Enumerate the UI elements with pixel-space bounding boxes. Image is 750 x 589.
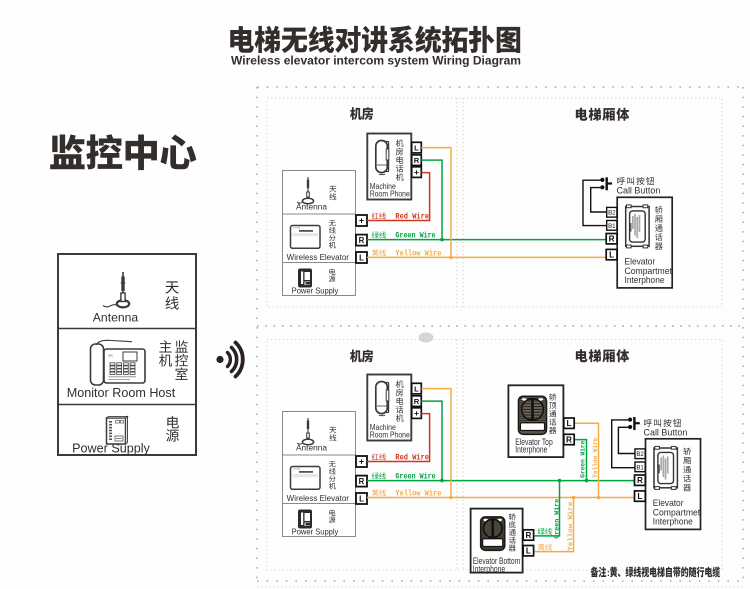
svg-text:R: R (359, 477, 365, 486)
svg-text:+: + (414, 167, 419, 177)
svg-text:L: L (526, 547, 531, 556)
svg-text:+: + (359, 456, 364, 466)
svg-text:Yellow Wire: Yellow Wire (592, 438, 599, 478)
svg-text:B2: B2 (636, 451, 644, 458)
svg-text:R: R (414, 156, 420, 165)
svg-text:Wireless elevator intercom sys: Wireless elevator intercom system Wiring… (231, 54, 521, 68)
svg-text:Monitor Room Host: Monitor Room Host (67, 386, 176, 400)
svg-text:R: R (609, 235, 615, 244)
svg-text:L: L (414, 384, 419, 393)
svg-text:B2: B2 (608, 210, 616, 217)
svg-text:Antenna: Antenna (296, 202, 327, 212)
svg-text:B1: B1 (636, 464, 644, 471)
svg-text:w.cnkj: w.cnkj (293, 226, 300, 230)
svg-text:Yellow Wire: Yellow Wire (395, 250, 441, 258)
svg-text:R: R (525, 531, 531, 540)
svg-text:R: R (359, 236, 365, 245)
svg-text:L: L (566, 419, 571, 428)
svg-text:R: R (414, 397, 420, 406)
svg-text:Power Supply: Power Supply (72, 442, 150, 456)
svg-text:Interphone: Interphone (473, 564, 506, 574)
svg-text:Red Wire: Red Wire (395, 214, 429, 222)
svg-text:Wireless Elevator: Wireless Elevator (287, 493, 349, 503)
svg-text:Yellow Wire: Yellow Wire (567, 502, 574, 551)
svg-text:R: R (566, 436, 572, 445)
svg-text:Power Supply: Power Supply (292, 286, 339, 296)
svg-text:Call Button: Call Button (617, 185, 661, 196)
svg-text:Room Phone: Room Phone (370, 430, 410, 440)
svg-text:w.cnkj: w.cnkj (293, 467, 300, 471)
svg-text:Interphone: Interphone (625, 275, 665, 285)
svg-text:abc: abc (108, 354, 114, 358)
svg-text:Interphone: Interphone (515, 445, 547, 455)
svg-text:Call Button: Call Button (644, 427, 688, 438)
svg-text:Yellow Wire: Yellow Wire (395, 490, 441, 498)
svg-text:Room Phone: Room Phone (370, 189, 410, 199)
svg-text:+: + (359, 215, 364, 225)
svg-text:L: L (359, 494, 364, 503)
svg-text:+: + (414, 408, 419, 418)
svg-text:Red Wire: Red Wire (395, 455, 429, 463)
svg-text:Green Wire: Green Wire (580, 441, 587, 478)
svg-text:L: L (609, 251, 614, 260)
svg-text:Power Supply: Power Supply (292, 527, 339, 537)
svg-text:Green Wire: Green Wire (395, 474, 436, 482)
svg-text:Green Wire: Green Wire (395, 233, 436, 241)
svg-text:Wireless Elevator: Wireless Elevator (287, 252, 349, 262)
svg-text:Green Wire: Green Wire (554, 499, 561, 539)
svg-text:Antenna: Antenna (93, 311, 139, 325)
svg-text:R: R (637, 476, 643, 485)
svg-text:Interphone: Interphone (653, 517, 693, 527)
svg-text:L: L (637, 492, 642, 501)
svg-text:B1: B1 (608, 223, 616, 230)
svg-text:L: L (414, 143, 419, 152)
svg-text:L: L (359, 253, 364, 262)
svg-text::: : (607, 568, 610, 578)
svg-text:Antenna: Antenna (296, 443, 327, 453)
